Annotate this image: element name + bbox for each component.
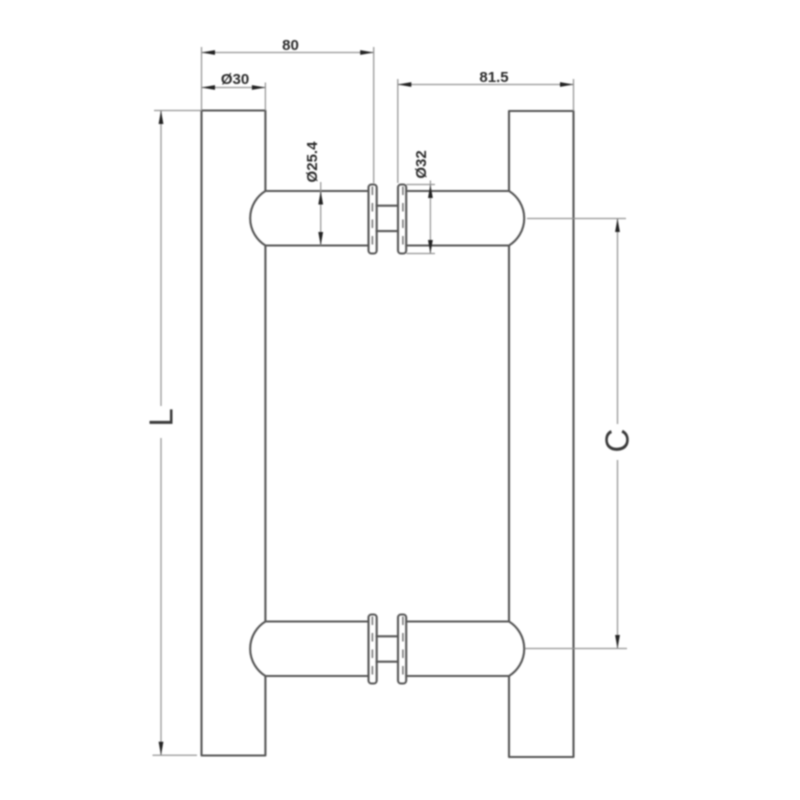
- svg-text:C: C: [599, 429, 636, 453]
- svg-text:80: 80: [282, 37, 299, 54]
- svg-text:Ø32: Ø32: [413, 150, 430, 178]
- svg-text:L: L: [143, 408, 180, 426]
- svg-text:81.5: 81.5: [479, 69, 508, 86]
- svg-text:Ø30: Ø30: [221, 71, 249, 88]
- svg-text:Ø25.4: Ø25.4: [304, 141, 321, 183]
